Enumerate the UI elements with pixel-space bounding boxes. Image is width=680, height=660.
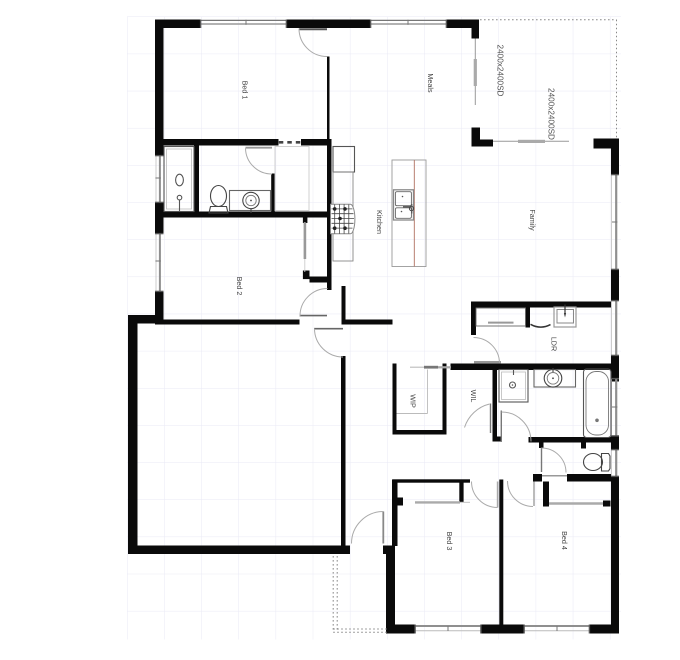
- svg-text:Kitchen: Kitchen: [375, 210, 384, 234]
- svg-text:2400x2400SD: 2400x2400SD: [496, 45, 505, 97]
- svg-text:Bed 1: Bed 1: [241, 81, 250, 100]
- svg-text:2400x2400SD: 2400x2400SD: [547, 88, 556, 140]
- svg-text:WIL: WIL: [469, 390, 478, 403]
- svg-text:Family: Family: [528, 209, 537, 231]
- svg-text:WIP: WIP: [409, 394, 418, 408]
- svg-text:LDR: LDR: [550, 337, 559, 351]
- svg-text:Bed 2: Bed 2: [235, 277, 244, 296]
- svg-text:Bed 4: Bed 4: [560, 531, 569, 550]
- svg-text:Meals: Meals: [426, 73, 435, 93]
- svg-text:Bed 3: Bed 3: [445, 532, 454, 551]
